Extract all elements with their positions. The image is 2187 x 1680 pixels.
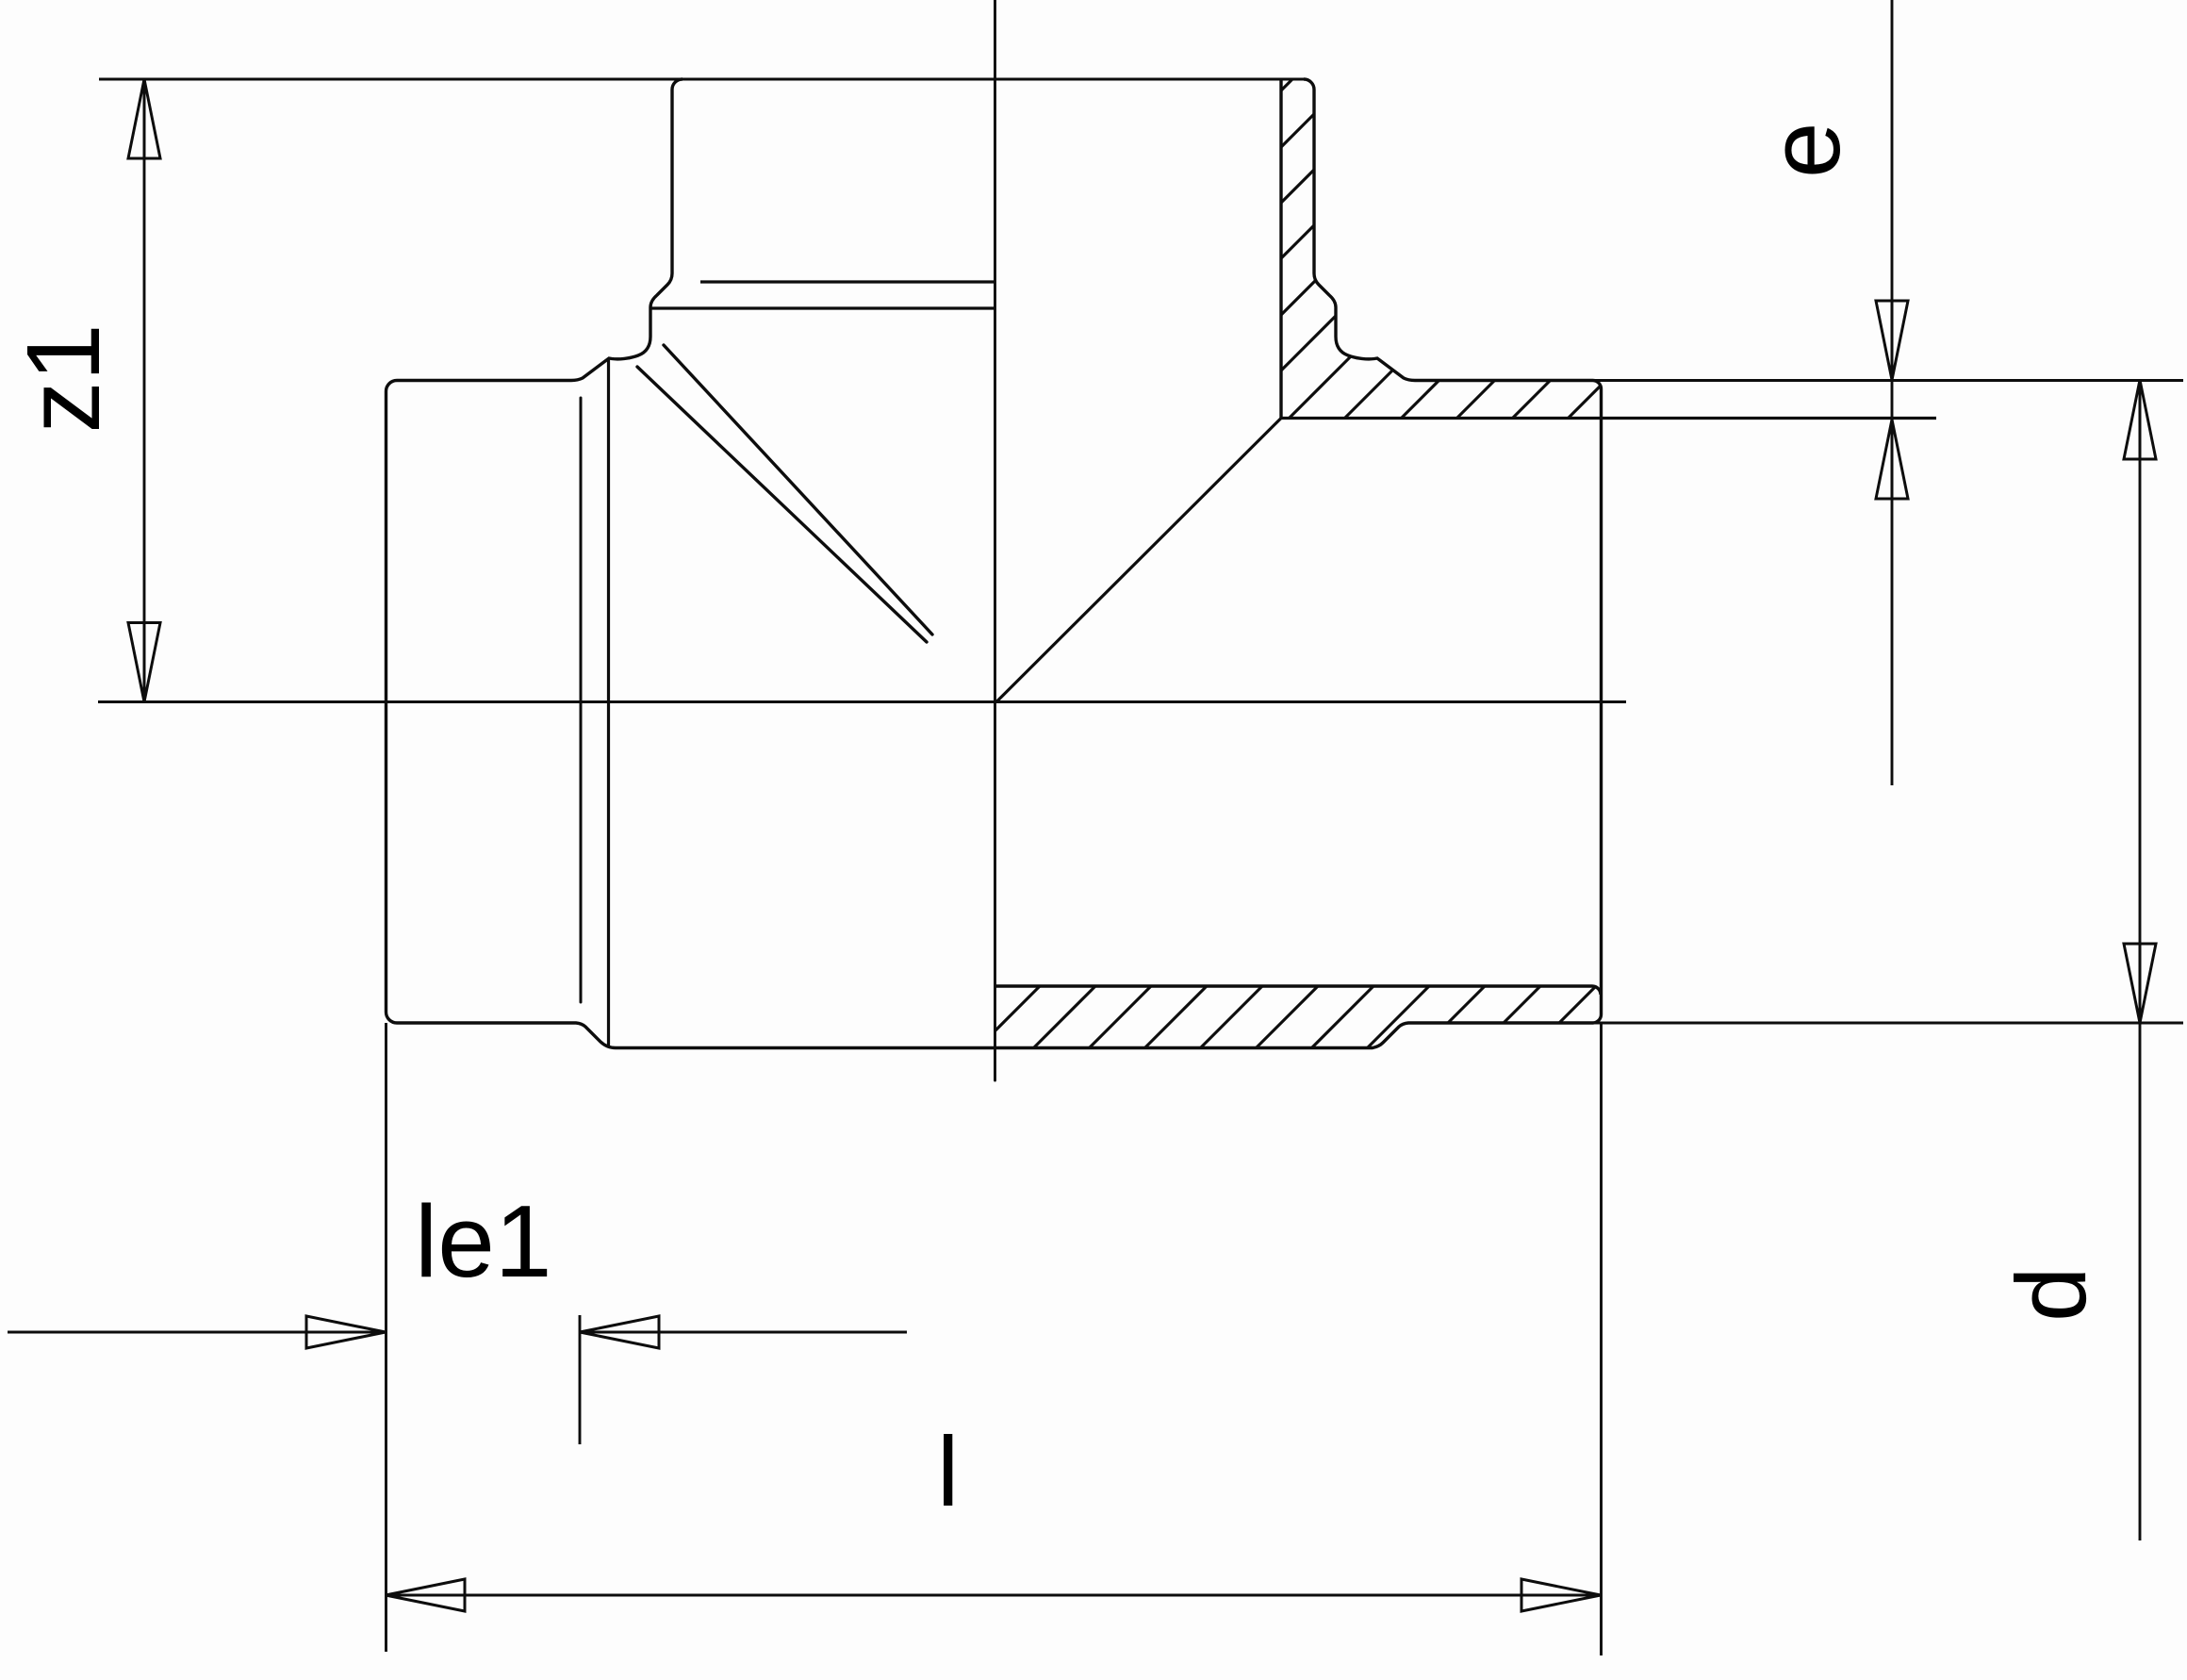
svg-text:l: l (937, 1417, 959, 1527)
svg-text:z1: z1 (6, 323, 122, 433)
svg-text:d: d (1997, 1267, 2107, 1322)
svg-text:e: e (1748, 122, 1861, 178)
svg-text:le1: le1 (415, 1184, 551, 1299)
